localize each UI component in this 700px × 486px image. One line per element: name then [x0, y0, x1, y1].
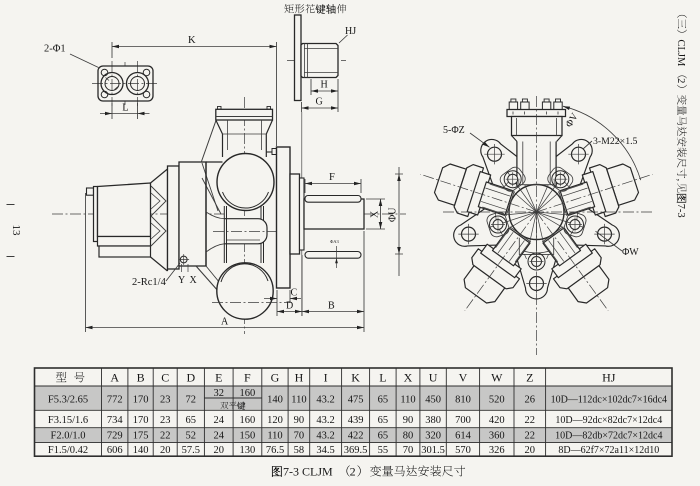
svg-text:5-ΦZ: 5-ΦZ — [443, 125, 465, 136]
svg-text:110: 110 — [267, 431, 282, 442]
svg-text:58: 58 — [294, 445, 305, 456]
svg-text:G: G — [271, 371, 280, 385]
svg-text:2: 2 — [350, 465, 356, 479]
svg-text:130: 130 — [240, 445, 256, 456]
svg-text:90: 90 — [403, 415, 414, 426]
svg-text:140: 140 — [133, 445, 149, 456]
svg-text:70: 70 — [403, 445, 414, 456]
svg-text:614: 614 — [455, 431, 472, 442]
svg-text:72: 72 — [186, 395, 197, 406]
svg-text:F2.0/1.0: F2.0/1.0 — [50, 431, 85, 442]
svg-text:I: I — [324, 371, 328, 385]
svg-text:26: 26 — [525, 395, 536, 406]
svg-text:C: C — [161, 371, 169, 385]
svg-text:13: 13 — [10, 225, 22, 237]
svg-text:G: G — [316, 97, 323, 108]
svg-text:7-3 CLJM: 7-3 CLJM — [283, 465, 333, 479]
svg-text:175: 175 — [133, 431, 149, 442]
svg-text:22: 22 — [160, 431, 171, 442]
svg-text:E: E — [215, 371, 222, 385]
svg-text:F: F — [244, 371, 251, 385]
svg-text:24: 24 — [214, 431, 225, 442]
svg-text:2-Φ1: 2-Φ1 — [44, 44, 66, 55]
svg-text:23: 23 — [160, 415, 171, 426]
svg-text:43.2: 43.2 — [316, 395, 334, 406]
svg-text:110: 110 — [291, 395, 306, 406]
svg-text:22: 22 — [525, 431, 536, 442]
svg-text:65: 65 — [378, 431, 389, 442]
svg-text:24: 24 — [214, 415, 225, 426]
svg-text:F5.3/2.65: F5.3/2.65 — [48, 395, 88, 406]
svg-text:10D—82db×72dc7×12dc4: 10D—82db×72dc7×12dc4 — [555, 431, 662, 442]
svg-text:H: H — [321, 80, 328, 91]
svg-text:,: , — [675, 179, 686, 182]
svg-text:65: 65 — [378, 395, 389, 406]
svg-text:X: X — [370, 210, 381, 218]
svg-text:20: 20 — [160, 445, 171, 456]
svg-text:734: 734 — [107, 415, 124, 426]
svg-text:8D—62f7×72a11×12d10: 8D—62f7×72a11×12d10 — [558, 445, 659, 456]
svg-text:65: 65 — [186, 415, 197, 426]
svg-text:7-3: 7-3 — [675, 204, 686, 218]
svg-text:V: V — [459, 371, 468, 385]
svg-text:F1.5/0.42: F1.5/0.42 — [48, 445, 88, 456]
svg-text:A: A — [221, 317, 229, 328]
svg-text:A: A — [110, 371, 119, 385]
svg-text:810: 810 — [455, 395, 471, 406]
svg-text:170: 170 — [133, 395, 149, 406]
svg-text:2-Rc1/4: 2-Rc1/4 — [132, 277, 167, 288]
svg-text:120: 120 — [267, 415, 283, 426]
svg-text:520: 520 — [489, 395, 505, 406]
svg-text:606: 606 — [107, 445, 123, 456]
svg-text:43.2: 43.2 — [316, 415, 334, 426]
svg-text:F: F — [329, 172, 335, 183]
svg-text:43.2: 43.2 — [316, 431, 334, 442]
svg-text:380: 380 — [425, 415, 441, 426]
svg-text:10D—92dc×82dc7×12dc4: 10D—92dc×82dc7×12dc4 — [555, 415, 662, 426]
svg-text:10D—112dc×102dc7×16dc4: 10D—112dc×102dc7×16dc4 — [551, 395, 667, 406]
svg-text:B: B — [328, 301, 335, 312]
svg-text:570: 570 — [455, 445, 471, 456]
svg-text:3-M22×1.5: 3-M22×1.5 — [593, 136, 638, 147]
svg-text:700: 700 — [455, 415, 471, 426]
svg-text:360: 360 — [489, 431, 505, 442]
svg-text:Z: Z — [526, 371, 533, 385]
svg-text:90: 90 — [294, 415, 305, 426]
svg-text:HJ: HJ — [345, 26, 356, 37]
svg-text:326: 326 — [489, 445, 505, 456]
svg-text:D: D — [186, 371, 195, 385]
svg-text:HJ: HJ — [602, 371, 616, 385]
svg-text:20: 20 — [214, 445, 225, 456]
svg-text:150: 150 — [240, 431, 256, 442]
svg-text:55: 55 — [378, 445, 389, 456]
svg-text:L: L — [379, 371, 386, 385]
svg-text:20: 20 — [525, 445, 536, 456]
svg-text:140: 140 — [267, 395, 283, 406]
svg-text:2: 2 — [675, 78, 686, 83]
svg-text:110: 110 — [400, 395, 415, 406]
svg-text:369.5: 369.5 — [344, 445, 368, 456]
svg-text:L: L — [122, 103, 128, 114]
svg-text:80: 80 — [403, 431, 414, 442]
svg-text:C: C — [291, 288, 298, 299]
svg-text:22: 22 — [525, 415, 536, 426]
svg-text:X: X — [190, 275, 198, 286]
svg-text:170: 170 — [133, 415, 149, 426]
svg-text:U: U — [429, 371, 438, 385]
svg-text:52: 52 — [186, 431, 197, 442]
svg-text:32: 32 — [214, 388, 225, 399]
svg-text:ΦW: ΦW — [622, 247, 639, 258]
svg-text:729: 729 — [107, 431, 123, 442]
svg-text:320: 320 — [425, 431, 441, 442]
svg-text:ΦU: ΦU — [388, 207, 399, 222]
svg-text:23: 23 — [160, 395, 171, 406]
svg-text:34.5: 34.5 — [316, 445, 334, 456]
svg-text:K: K — [351, 371, 360, 385]
svg-text:422: 422 — [348, 431, 364, 442]
svg-text:ΦA3: ΦA3 — [330, 239, 340, 244]
svg-text:439: 439 — [348, 415, 364, 426]
svg-text:X: X — [404, 371, 413, 385]
svg-text:475: 475 — [348, 395, 364, 406]
svg-text:CLJM: CLJM — [675, 40, 686, 68]
svg-text:450: 450 — [425, 395, 441, 406]
svg-text:160: 160 — [240, 388, 256, 399]
svg-text:Y: Y — [178, 275, 185, 286]
svg-text:W: W — [491, 371, 503, 385]
svg-text:76.5: 76.5 — [266, 445, 284, 456]
svg-text:K: K — [188, 35, 196, 46]
svg-text:420: 420 — [489, 415, 505, 426]
svg-text:301.5: 301.5 — [421, 445, 445, 456]
svg-text:F3.15/1.6: F3.15/1.6 — [48, 415, 88, 426]
svg-text:H: H — [295, 371, 304, 385]
svg-text:70: 70 — [294, 431, 305, 442]
svg-text:57.5: 57.5 — [182, 445, 200, 456]
svg-text:65: 65 — [378, 415, 389, 426]
svg-text:B: B — [137, 371, 145, 385]
svg-text:772: 772 — [107, 395, 123, 406]
svg-text:D: D — [286, 301, 293, 312]
svg-text:160: 160 — [240, 415, 256, 426]
